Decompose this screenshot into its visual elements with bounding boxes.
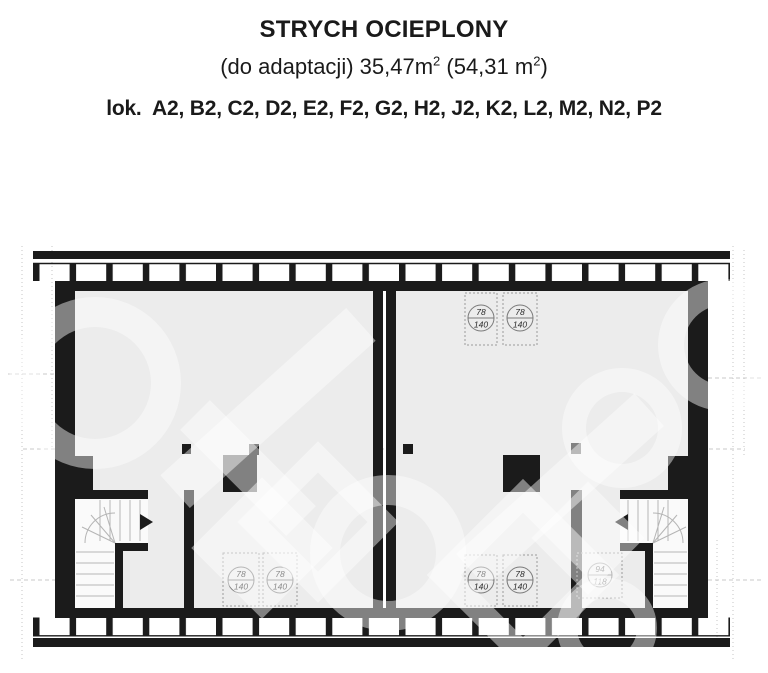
bottom-eave-line: [33, 638, 730, 647]
floor-plan-drawing: 78 140 78 140 78 140 78 140 78 140 78 14…: [0, 0, 768, 673]
left-stairwell-lower: [75, 543, 115, 608]
right-post-1: [403, 444, 413, 454]
party-wall-left-leaf: [373, 281, 383, 618]
window-size-numerator: 78: [515, 569, 525, 579]
right-stairwell-lower: [653, 543, 688, 608]
right-wall-pilaster: [668, 456, 708, 492]
window-size-numerator: 78: [476, 307, 486, 317]
window-size-denominator: 140: [474, 320, 488, 330]
window-size-numerator: 78: [515, 307, 525, 317]
party-wall-right-leaf: [386, 281, 396, 618]
window-size-denominator: 140: [513, 582, 527, 592]
right-exterior-wall: [688, 281, 708, 618]
left-stair-l-wall-vertical: [115, 543, 123, 608]
top-eave-line: [33, 251, 730, 259]
top-tick-band: [33, 263, 730, 281]
right-stair-enclosure-wall: [620, 490, 708, 499]
floor-plan-page: { "header": { "title": "STRYCH OCIEPLONY…: [0, 0, 768, 673]
left-stair-enclosure-wall: [55, 490, 148, 499]
window-size-denominator: 140: [513, 320, 527, 330]
